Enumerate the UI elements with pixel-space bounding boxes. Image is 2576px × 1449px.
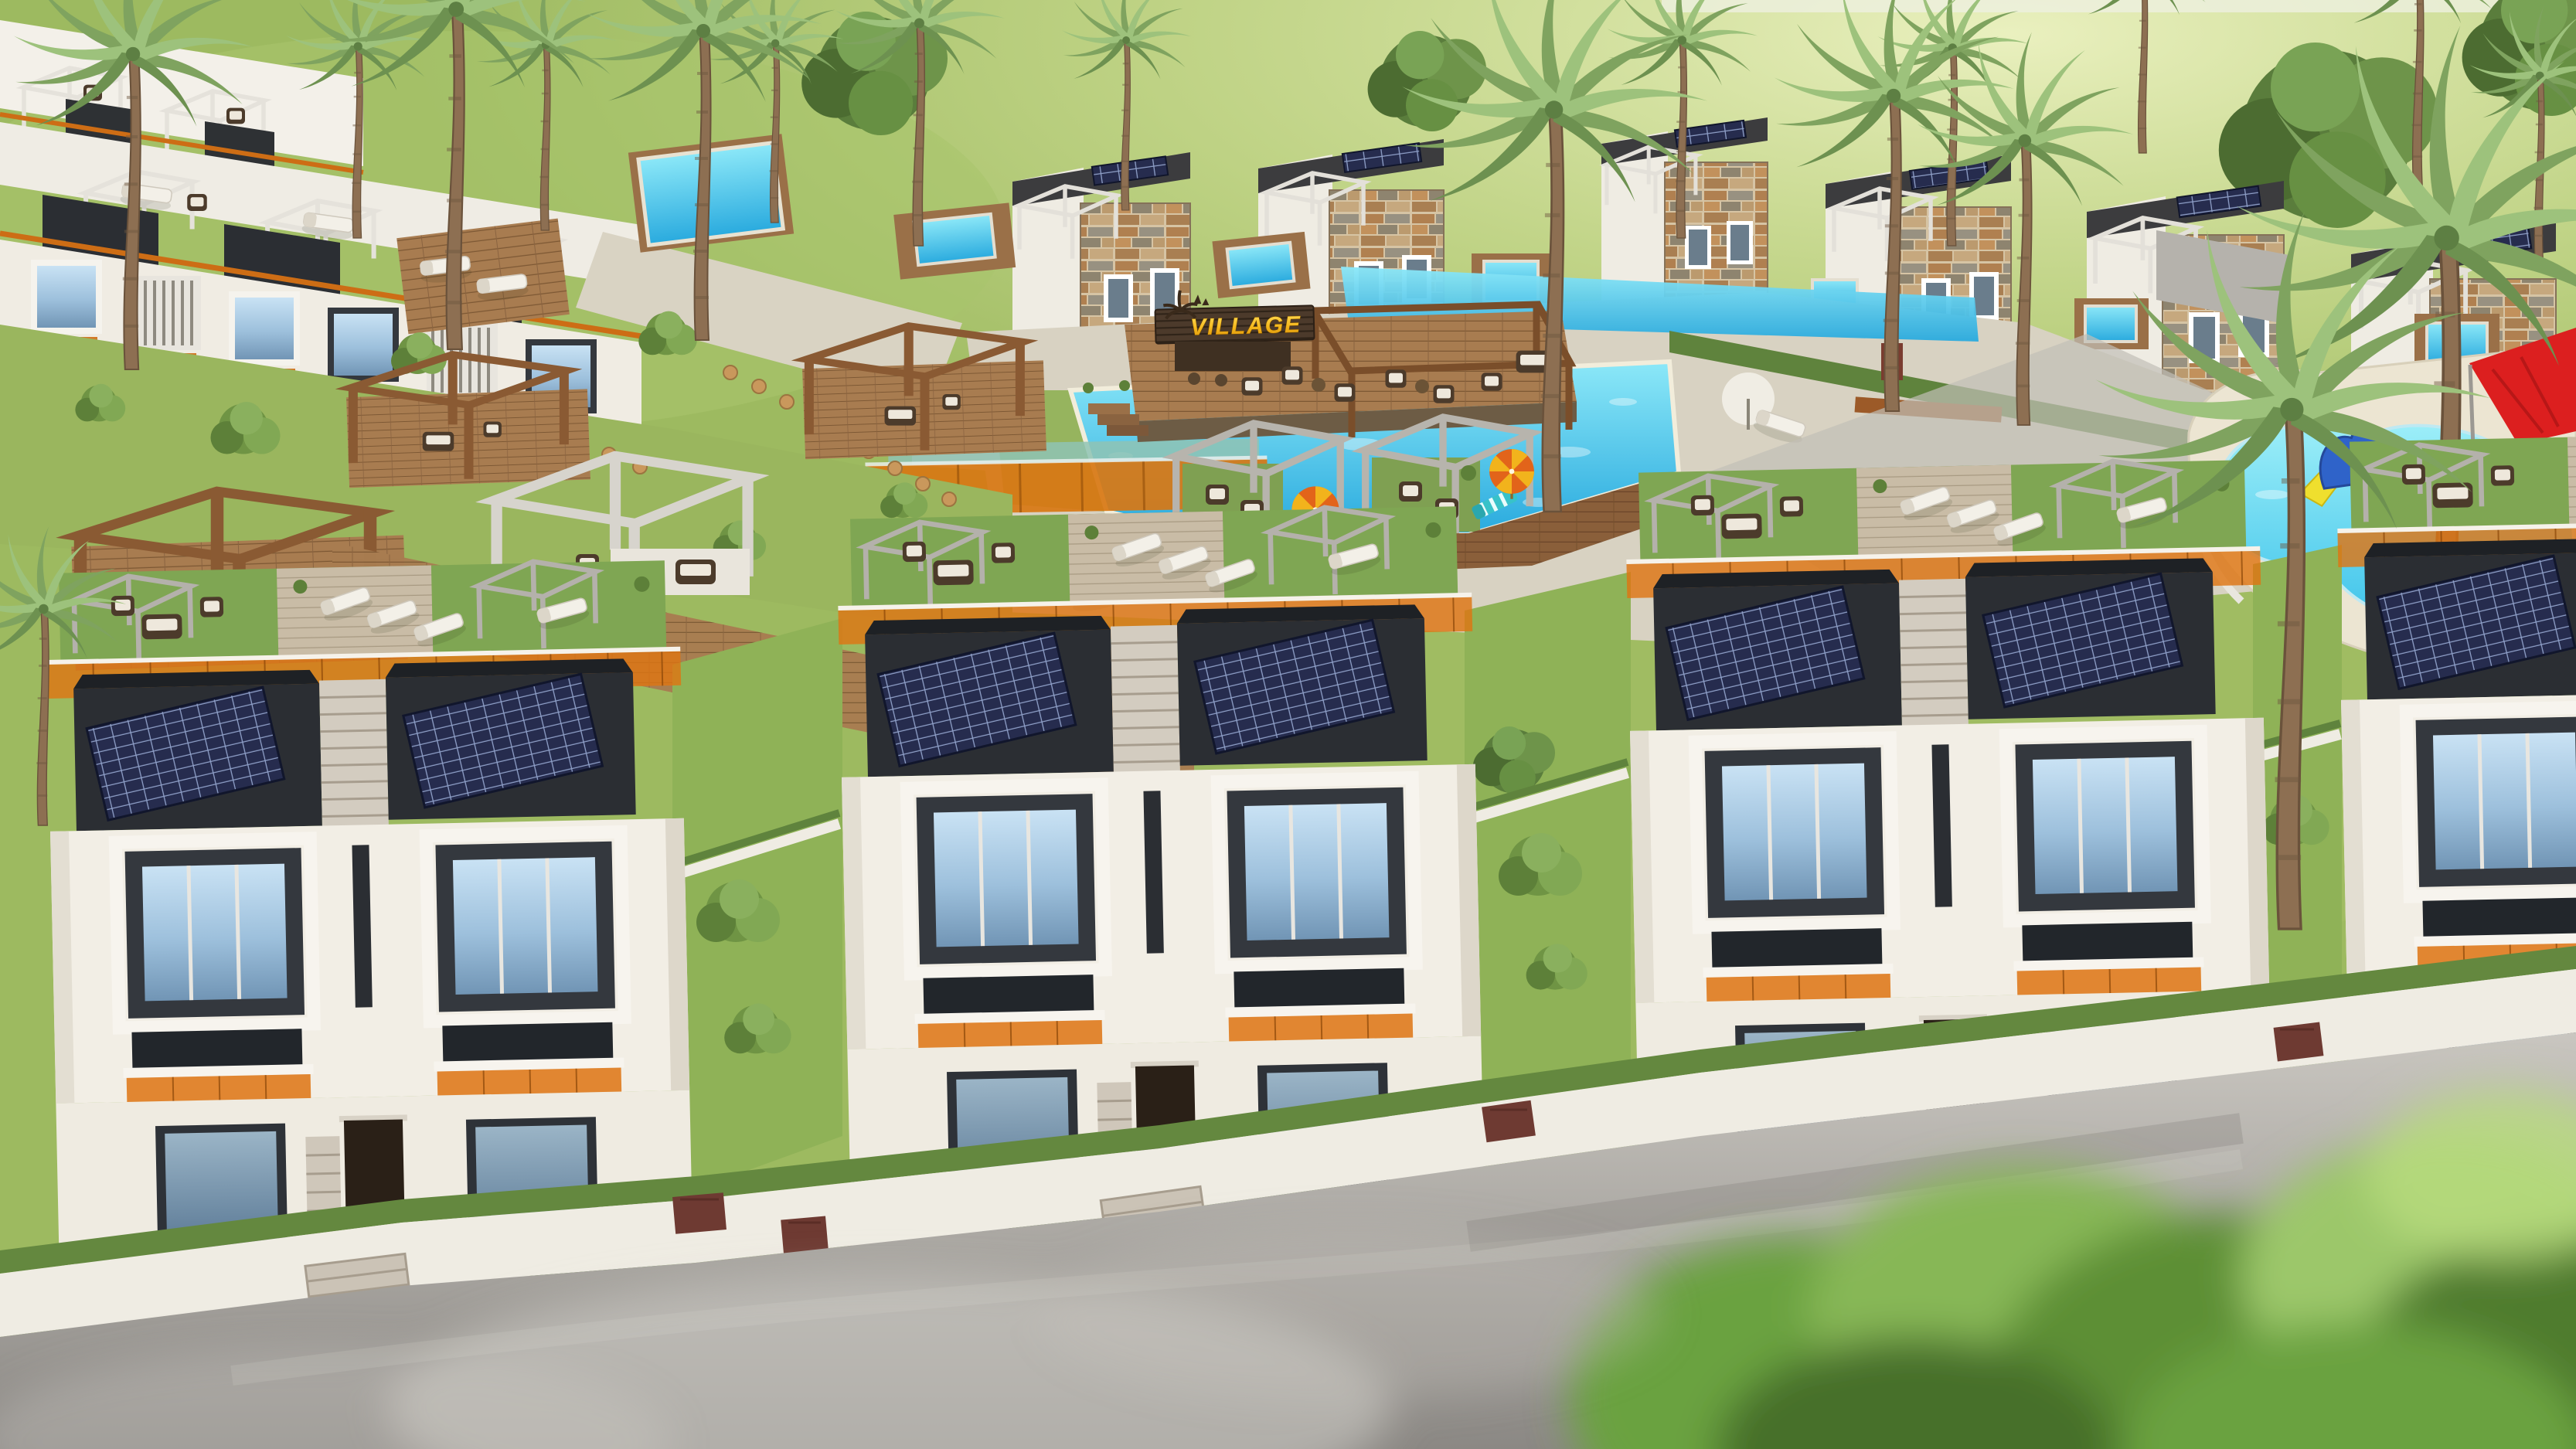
village-sign-text: VILLAGE [1190,312,1302,341]
resort-render: VILLAGE [0,0,2576,1449]
rattan-chair [1386,369,1407,387]
rattan-chair [1282,366,1303,384]
rattan-chair [1335,383,1356,401]
bar-counter [1175,342,1291,371]
rattan-chair [226,108,245,124]
rattan-chair [1434,385,1455,403]
rattan-chair [187,194,207,211]
mini-pool [628,134,794,252]
wood-sun-deck [396,219,570,335]
rattan-chair [1482,372,1502,390]
rattan-chair [1242,377,1263,395]
